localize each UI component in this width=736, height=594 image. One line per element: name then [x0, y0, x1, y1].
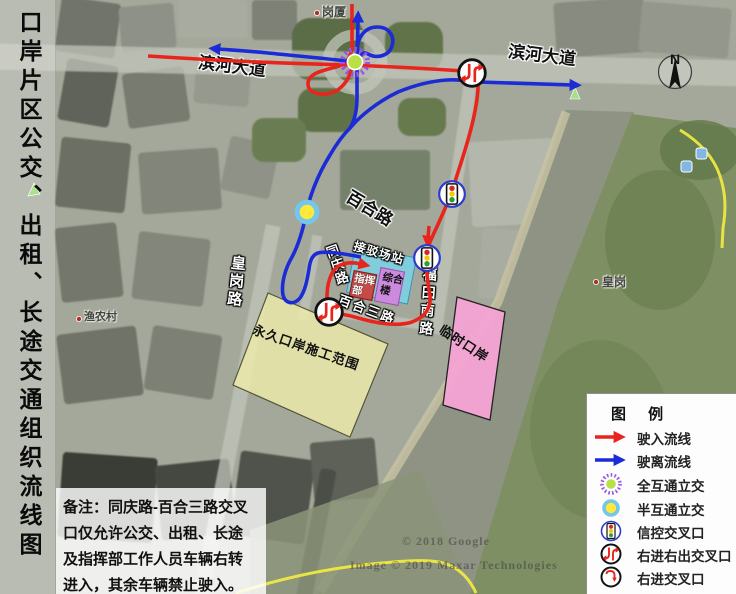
place-marker-dot — [76, 316, 81, 321]
right-in-right-out-icon — [591, 542, 631, 565]
legend-item: 全互通立交 — [587, 472, 736, 495]
legend-item: 右进交叉口 — [587, 565, 736, 588]
note-line: 进入，其余车辆禁止驶入。 — [63, 573, 260, 594]
half-interchange-icon — [297, 202, 317, 222]
inbound-arrowhead-futian — [428, 226, 429, 238]
right-in-icon — [591, 565, 631, 588]
note-line: 口仅允许公交、出租、长途 — [63, 521, 260, 547]
legend-item-label: 信控交叉口 — [637, 522, 705, 542]
north-compass: N — [659, 51, 692, 89]
legend-panel: 图 例 驶入流线 驶离流线 全互通立交 半互通立交 — [586, 393, 736, 594]
page-title: 口岸片区公交、出租、长途交通组织流线图 — [12, 10, 46, 561]
legend-item: 信控交叉口 — [587, 519, 736, 542]
place-marker-dot — [314, 10, 319, 15]
inbound-north-ramp-loop — [308, 4, 352, 94]
note-box: 备注：同庆路-百合三路交叉 口仅允许公交、出租、长途 及指挥部工作人员车辆右转 … — [56, 488, 266, 594]
right-in-right-out-icon — [316, 299, 343, 326]
legend-item-label: 驶入流线 — [637, 428, 691, 448]
legend-title: 图 例 — [611, 403, 672, 424]
legend-item-label: 半互通立交 — [637, 499, 705, 519]
outbound-arrow-icon — [591, 448, 631, 471]
note-line: 备注：同庆路-百合三路交叉 — [63, 495, 260, 521]
note-line: 及指挥部工作人员车辆右转 — [63, 547, 260, 573]
legend-item: 驶入流线 — [587, 425, 736, 448]
map-poi-icon — [681, 161, 692, 172]
map-poi-icon — [696, 148, 707, 159]
inbound-arrow-icon — [591, 425, 631, 448]
legend-item-label: 驶离流线 — [637, 451, 691, 471]
traffic-flow-map: 滨河大道 滨河大道 百合路 皇岗路 同庆路 福田南路 百合三路 接驳场站 指挥部… — [0, 0, 736, 594]
legend-item-label: 右进右出交叉口 — [637, 545, 732, 565]
right-in-right-out-icon — [459, 60, 486, 87]
full-interchange-icon — [591, 472, 631, 495]
place-marker-dot — [593, 279, 598, 284]
outbound-ne-ramp-loop — [357, 27, 393, 61]
signal-intersection-icon — [591, 519, 631, 542]
signal-intersection-icon — [414, 245, 440, 271]
outbound-east-branch — [350, 80, 572, 128]
legend-item: 半互通立交 — [587, 496, 736, 519]
half-interchange-icon — [591, 496, 631, 519]
legend-item-label: 右进交叉口 — [637, 568, 705, 588]
signal-intersection-icon — [439, 181, 465, 207]
legend-item-label: 全互通立交 — [637, 475, 705, 495]
legend-item: 右进右出交叉口 — [587, 542, 736, 565]
legend-item: 驶离流线 — [587, 448, 736, 471]
